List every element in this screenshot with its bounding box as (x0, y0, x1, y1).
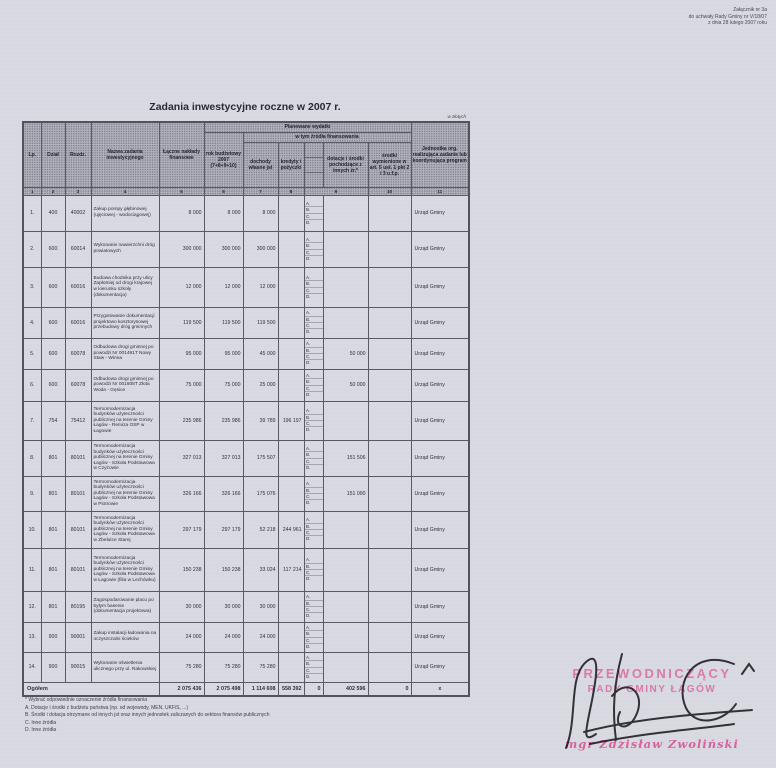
cell-laczne: 24 000 (159, 622, 204, 652)
cell-task-name: Przygotowanie dokumentacji projektowo ko… (91, 307, 159, 338)
cell-jednostka: Urząd Gminy (411, 622, 469, 652)
footnote: A. Dotacje i środki z budżetu państwa (n… (25, 705, 270, 713)
cell-task-name: Odbudowa drogi gminnej po powodzi Nr 001… (91, 338, 159, 369)
cell-source-letters: A. B. C. D. (304, 622, 323, 652)
cell-task-name: Zakup pompy głębinowej (ujęciowej - wodo… (91, 195, 159, 231)
cell-jednostka: Urząd Gminy (411, 401, 469, 440)
table-row: 3. 600 60016 Budowa chodnika przy ulicy … (23, 267, 469, 307)
col-header-rok: rok budżetowy 2007 (7+8+9+10) (204, 132, 243, 187)
table-row: 13. 900 90001 Zakup instalacji ładowania… (23, 622, 469, 652)
cell-laczne: 12 000 (159, 267, 204, 307)
cell-jednostka: Urząd Gminy (411, 652, 469, 682)
cell-dzial: 754 (41, 401, 65, 440)
col-number: 9 (304, 187, 368, 195)
cell-srodki (368, 267, 411, 307)
cell-dochody: 52 218 (243, 511, 278, 548)
cell-lp: 14. (23, 652, 41, 682)
source-letter: D. (305, 256, 323, 261)
table-row: 9. 801 80101 Termomodernizacja budynków … (23, 476, 469, 511)
cell-rok: 75 000 (204, 369, 243, 401)
source-letter: D. (305, 360, 323, 365)
table-row: 7. 754 75412 Termomodernizacja budynków … (23, 401, 469, 440)
cell-kredyty (278, 476, 304, 511)
footnotes: * Wybrać odpowiednie oznaczenie źródła f… (25, 697, 270, 735)
cell-kredyty (278, 369, 304, 401)
signature-ink (538, 648, 768, 758)
cell-dotacje: 50 000 (323, 369, 368, 401)
table-body: 1. 400 40002 Zakup pompy głębinowej (uję… (23, 195, 469, 682)
cell-kredyty (278, 195, 304, 231)
cell-laczne: 119 500 (159, 307, 204, 338)
cell-jednostka: Urząd Gminy (411, 267, 469, 307)
cell-dotacje (323, 401, 368, 440)
cell-jednostka: Urząd Gminy (411, 231, 469, 267)
investment-table: Lp. Dział Rozdz. Nazwa zadania inwestycy… (22, 121, 470, 697)
source-letter: D. (305, 644, 323, 649)
cell-task-name: Termomodernizacja budynków użyteczności … (91, 401, 159, 440)
cell-rok: 12 000 (204, 267, 243, 307)
table-header: Lp. Dział Rozdz. Nazwa zadania inwestycy… (23, 122, 469, 195)
cell-laczne: 75 000 (159, 369, 204, 401)
cell-dochody: 300 000 (243, 231, 278, 267)
cell-task-name: Budowa chodnika przy ulicy Zapłotniej od… (91, 267, 159, 307)
cell-srodki (368, 440, 411, 476)
source-letter: D. (305, 613, 323, 618)
cell-dochody: 8 000 (243, 195, 278, 231)
cell-dzial: 801 (41, 440, 65, 476)
cell-dochody: 39 789 (243, 401, 278, 440)
cell-dzial: 400 (41, 195, 65, 231)
col-header-rozdz: Rozdz. (65, 122, 91, 187)
cell-task-name: Termomodernizacja budynków użyteczności … (91, 476, 159, 511)
cell-dzial: 600 (41, 369, 65, 401)
col-number: 7 (243, 187, 278, 195)
cell-srodki (368, 652, 411, 682)
cell-rozdz: 60014 (65, 231, 91, 267)
cell-dochody: 33 024 (243, 548, 278, 591)
cell-dochody: 75 280 (243, 652, 278, 682)
col-header-lp: Lp. (23, 122, 41, 187)
cell-source-letters: A. B. C. D. (304, 511, 323, 548)
cell-rozdz: 80101 (65, 440, 91, 476)
cell-rok: 95 000 (204, 338, 243, 369)
source-letter: D. (305, 674, 323, 679)
col-number: 4 (91, 187, 159, 195)
cell-lp: 2. (23, 231, 41, 267)
cell-kredyty (278, 591, 304, 622)
cell-dotacje (323, 511, 368, 548)
cell-dochody: 24 000 (243, 622, 278, 652)
cell-dzial: 900 (41, 652, 65, 682)
col-header-nazwa: Nazwa zadania inwestycyjnego (91, 122, 159, 187)
cell-jednostka: Urząd Gminy (411, 338, 469, 369)
cell-kredyty (278, 267, 304, 307)
cell-rok: 150 238 (204, 548, 243, 591)
total-rok: 2 075 498 (204, 682, 243, 696)
cell-dzial: 900 (41, 622, 65, 652)
cell-rozdz: 80101 (65, 511, 91, 548)
cell-lp: 12. (23, 591, 41, 622)
source-letter: D. (305, 500, 323, 505)
cell-jednostka: Urząd Gminy (411, 369, 469, 401)
col-header-planowane: Planowane wydatki (204, 122, 411, 132)
cell-srodki (368, 476, 411, 511)
document-title: Zadania inwestycyjne roczne w 2007 r. (22, 101, 468, 113)
col-header-laczne: Łączne nakłady finansowe (159, 122, 204, 187)
footnote: C. Inne źródła (25, 720, 270, 728)
cell-kredyty (278, 307, 304, 338)
cell-lp: 7. (23, 401, 41, 440)
cell-source-letters: A. B. C. D. (304, 195, 323, 231)
cell-source-letters: A. B. C. D. (304, 548, 323, 591)
cell-laczne: 297 179 (159, 511, 204, 548)
cell-laczne: 30 000 (159, 591, 204, 622)
total-row: Ogółem 2 075 436 2 075 498 1 114 608 558… (23, 682, 469, 696)
cell-rok: 300 000 (204, 231, 243, 267)
attachment-note: Załącznik nr 3a do uchwały Rady Gminy nr… (689, 7, 767, 27)
cell-rozdz: 60078 (65, 369, 91, 401)
table-row: 2. 600 60014 Wykonanie nawierzchni dróg … (23, 231, 469, 267)
cell-source-letters: A. B. C. D. (304, 369, 323, 401)
cell-source-letters: A. B. C. D. (304, 652, 323, 682)
cell-task-name: Wykonanie oświetlenia ulicznego przy ul.… (91, 652, 159, 682)
cell-dzial: 801 (41, 591, 65, 622)
cell-rozdz: 40002 (65, 195, 91, 231)
source-letter-column-header (304, 142, 323, 187)
cell-dzial: 801 (41, 511, 65, 548)
cell-laczne: 326 166 (159, 476, 204, 511)
source-letter: D. (305, 220, 323, 225)
cell-dochody: 45 000 (243, 338, 278, 369)
col-number: 2 (41, 187, 65, 195)
cell-laczne: 8 000 (159, 195, 204, 231)
table-row: 14. 900 90015 Wykonanie oświetlenia ulic… (23, 652, 469, 682)
cell-dotacje (323, 548, 368, 591)
cell-task-name: Odbudowa drogi gminnej po powodzi Nr 001… (91, 369, 159, 401)
cell-lp: 6. (23, 369, 41, 401)
table-row: 6. 600 60078 Odbudowa drogi gminnej po p… (23, 369, 469, 401)
footnote: D. Inne źródła (25, 727, 270, 735)
cell-rok: 75 280 (204, 652, 243, 682)
total-jednostka: x (411, 682, 469, 696)
cell-lp: 11. (23, 548, 41, 591)
cell-srodki (368, 231, 411, 267)
cell-dzial: 600 (41, 231, 65, 267)
cell-rok: 119 500 (204, 307, 243, 338)
cell-jednostka: Urząd Gminy (411, 591, 469, 622)
cell-source-letters: A. B. C. D. (304, 401, 323, 440)
cell-srodki (368, 401, 411, 440)
cell-kredyty: 244 961 (278, 511, 304, 548)
cell-srodki (368, 307, 411, 338)
cell-jednostka: Urząd Gminy (411, 476, 469, 511)
cell-dotacje (323, 195, 368, 231)
cell-dotacje (323, 622, 368, 652)
cell-srodki (368, 511, 411, 548)
total-laczne: 2 075 436 (159, 682, 204, 696)
cell-rozdz: 60016 (65, 307, 91, 338)
cell-laczne: 150 238 (159, 548, 204, 591)
cell-dotacje: 50 000 (323, 338, 368, 369)
cell-kredyty (278, 338, 304, 369)
total-letters-col: 0 (304, 682, 323, 696)
cell-jednostka: Urząd Gminy (411, 307, 469, 338)
col-number: 5 (159, 187, 204, 195)
cell-kredyty: 196 197 (278, 401, 304, 440)
cell-dotacje (323, 652, 368, 682)
cell-task-name: Wykonanie nawierzchni dróg powiatowych (91, 231, 159, 267)
cell-lp: 10. (23, 511, 41, 548)
cell-srodki (368, 591, 411, 622)
cell-srodki (368, 338, 411, 369)
cell-kredyty (278, 652, 304, 682)
total-srodki: 0 (368, 682, 411, 696)
cell-rozdz: 75412 (65, 401, 91, 440)
footnote: * Wybrać odpowiednie oznaczenie źródła f… (25, 697, 270, 705)
col-number: 10 (368, 187, 411, 195)
cell-dochody: 12 000 (243, 267, 278, 307)
cell-rok: 235 986 (204, 401, 243, 440)
cell-dzial: 801 (41, 548, 65, 591)
cell-dochody: 175 076 (243, 476, 278, 511)
cell-dotacje: 151 090 (323, 476, 368, 511)
cell-task-name: Zagospodarowanie placu po byłym basenie … (91, 591, 159, 622)
cell-dotacje: 151 506 (323, 440, 368, 476)
cell-lp: 3. (23, 267, 41, 307)
source-letter: D. (305, 294, 323, 299)
cell-source-letters: A. B. C. D. (304, 440, 323, 476)
source-letter: D. (305, 392, 323, 397)
table-row: 1. 400 40002 Zakup pompy głębinowej (uję… (23, 195, 469, 231)
cell-source-letters: A. B. C. D. (304, 591, 323, 622)
cell-dochody: 175 507 (243, 440, 278, 476)
col-header-dochody: dochody własne jst (243, 142, 278, 187)
cell-lp: 1. (23, 195, 41, 231)
cell-jednostka: Urząd Gminy (411, 440, 469, 476)
cell-lp: 5. (23, 338, 41, 369)
cell-rozdz: 60078 (65, 338, 91, 369)
cell-dotacje (323, 307, 368, 338)
cell-rozdz: 90001 (65, 622, 91, 652)
cell-lp: 9. (23, 476, 41, 511)
cell-source-letters: A. B. C. D. (304, 267, 323, 307)
cell-jednostka: Urząd Gminy (411, 548, 469, 591)
cell-srodki (368, 622, 411, 652)
cell-rok: 30 000 (204, 591, 243, 622)
cell-task-name: Termomodernizacja budynków użyteczności … (91, 511, 159, 548)
cell-source-letters: A. B. C. D. (304, 338, 323, 369)
cell-kredyty (278, 622, 304, 652)
cell-dotacje (323, 591, 368, 622)
cell-lp: 4. (23, 307, 41, 338)
source-letter: D. (305, 536, 323, 541)
col-number: 1 (23, 187, 41, 195)
cell-lp: 8. (23, 440, 41, 476)
cell-rozdz: 80101 (65, 548, 91, 591)
col-number: 8 (278, 187, 304, 195)
source-letter: D. (305, 576, 323, 581)
total-label: Ogółem (23, 682, 159, 696)
col-number: 11 (411, 187, 469, 195)
cell-srodki (368, 548, 411, 591)
cell-dochody: 30 000 (243, 591, 278, 622)
cell-dzial: 600 (41, 338, 65, 369)
source-letter: D. (305, 329, 323, 334)
cell-dotacje (323, 267, 368, 307)
total-kredyty: 558 392 (278, 682, 304, 696)
cell-rozdz: 60016 (65, 267, 91, 307)
cell-kredyty (278, 231, 304, 267)
cell-laczne: 300 000 (159, 231, 204, 267)
cell-dotacje (323, 231, 368, 267)
cell-rok: 8 000 (204, 195, 243, 231)
cell-rozdz: 90015 (65, 652, 91, 682)
cell-source-letters: A. B. C. D. (304, 476, 323, 511)
cell-lp: 13. (23, 622, 41, 652)
cell-jednostka: Urząd Gminy (411, 195, 469, 231)
total-dotacje: 402 596 (323, 682, 368, 696)
table-row: 11. 801 80101 Termomodernizacja budynków… (23, 548, 469, 591)
table-row: 8. 801 80101 Termomodernizacja budynków … (23, 440, 469, 476)
table-row: 10. 801 80101 Termomodernizacja budynków… (23, 511, 469, 548)
cell-laczne: 327 013 (159, 440, 204, 476)
cell-rozdz: 80195 (65, 591, 91, 622)
col-header-srodki: środki wymienione w art. 5 ust. 1 pkt 2 … (368, 142, 411, 187)
cell-kredyty (278, 440, 304, 476)
col-header-dotacje: dotacje i środki pochodzące z innych źr.… (323, 142, 368, 187)
cell-rok: 327 013 (204, 440, 243, 476)
cell-laczne: 95 000 (159, 338, 204, 369)
cell-dochody: 119 500 (243, 307, 278, 338)
cell-source-letters: A. B. C. D. (304, 231, 323, 267)
col-header-jednostka: Jednostka org. realizująca zadanie lub k… (411, 122, 469, 187)
cell-task-name: Termomodernizacja budynków użyteczności … (91, 440, 159, 476)
cell-laczne: 235 986 (159, 401, 204, 440)
cell-rok: 326 166 (204, 476, 243, 511)
cell-laczne: 75 280 (159, 652, 204, 682)
total-dochody: 1 114 608 (243, 682, 278, 696)
cell-source-letters: A. B. C. D. (304, 307, 323, 338)
cell-kredyty: 117 214 (278, 548, 304, 591)
attachment-line: z dnia 28 lutego 2007 roku (689, 20, 767, 27)
cell-dzial: 600 (41, 307, 65, 338)
cell-task-name: Zakup instalacji ładowania na oczyszczal… (91, 622, 159, 652)
currency-unit-note: w złotych (22, 114, 466, 119)
table-row: 12. 801 80195 Zagospodarowanie placu po … (23, 591, 469, 622)
cell-dzial: 600 (41, 267, 65, 307)
cell-srodki (368, 195, 411, 231)
cell-dzial: 801 (41, 476, 65, 511)
source-letter: D. (305, 427, 323, 432)
col-number: 6 (204, 187, 243, 195)
cell-srodki (368, 369, 411, 401)
table-row: 4. 600 60016 Przygotowanie dokumentacji … (23, 307, 469, 338)
col-header-zrodla: w tym źródła finansowania (243, 132, 411, 142)
cell-rozdz: 80101 (65, 476, 91, 511)
col-header-kredyty: kredyty i pożyczki (278, 142, 304, 187)
col-header-dzial: Dział (41, 122, 65, 187)
cell-jednostka: Urząd Gminy (411, 511, 469, 548)
footnote: B. Środki i dotacja otrzymane od innych … (25, 712, 270, 720)
cell-dochody: 25 000 (243, 369, 278, 401)
cell-task-name: Termomodernizacja budynków użyteczności … (91, 548, 159, 591)
cell-rok: 24 000 (204, 622, 243, 652)
cell-rok: 297 179 (204, 511, 243, 548)
source-letter: D. (305, 465, 323, 470)
col-number: 3 (65, 187, 91, 195)
column-number-row: 1 2 3 4 5 6 7 8 9 10 11 (23, 187, 469, 195)
table-row: 5. 600 60078 Odbudowa drogi gminnej po p… (23, 338, 469, 369)
